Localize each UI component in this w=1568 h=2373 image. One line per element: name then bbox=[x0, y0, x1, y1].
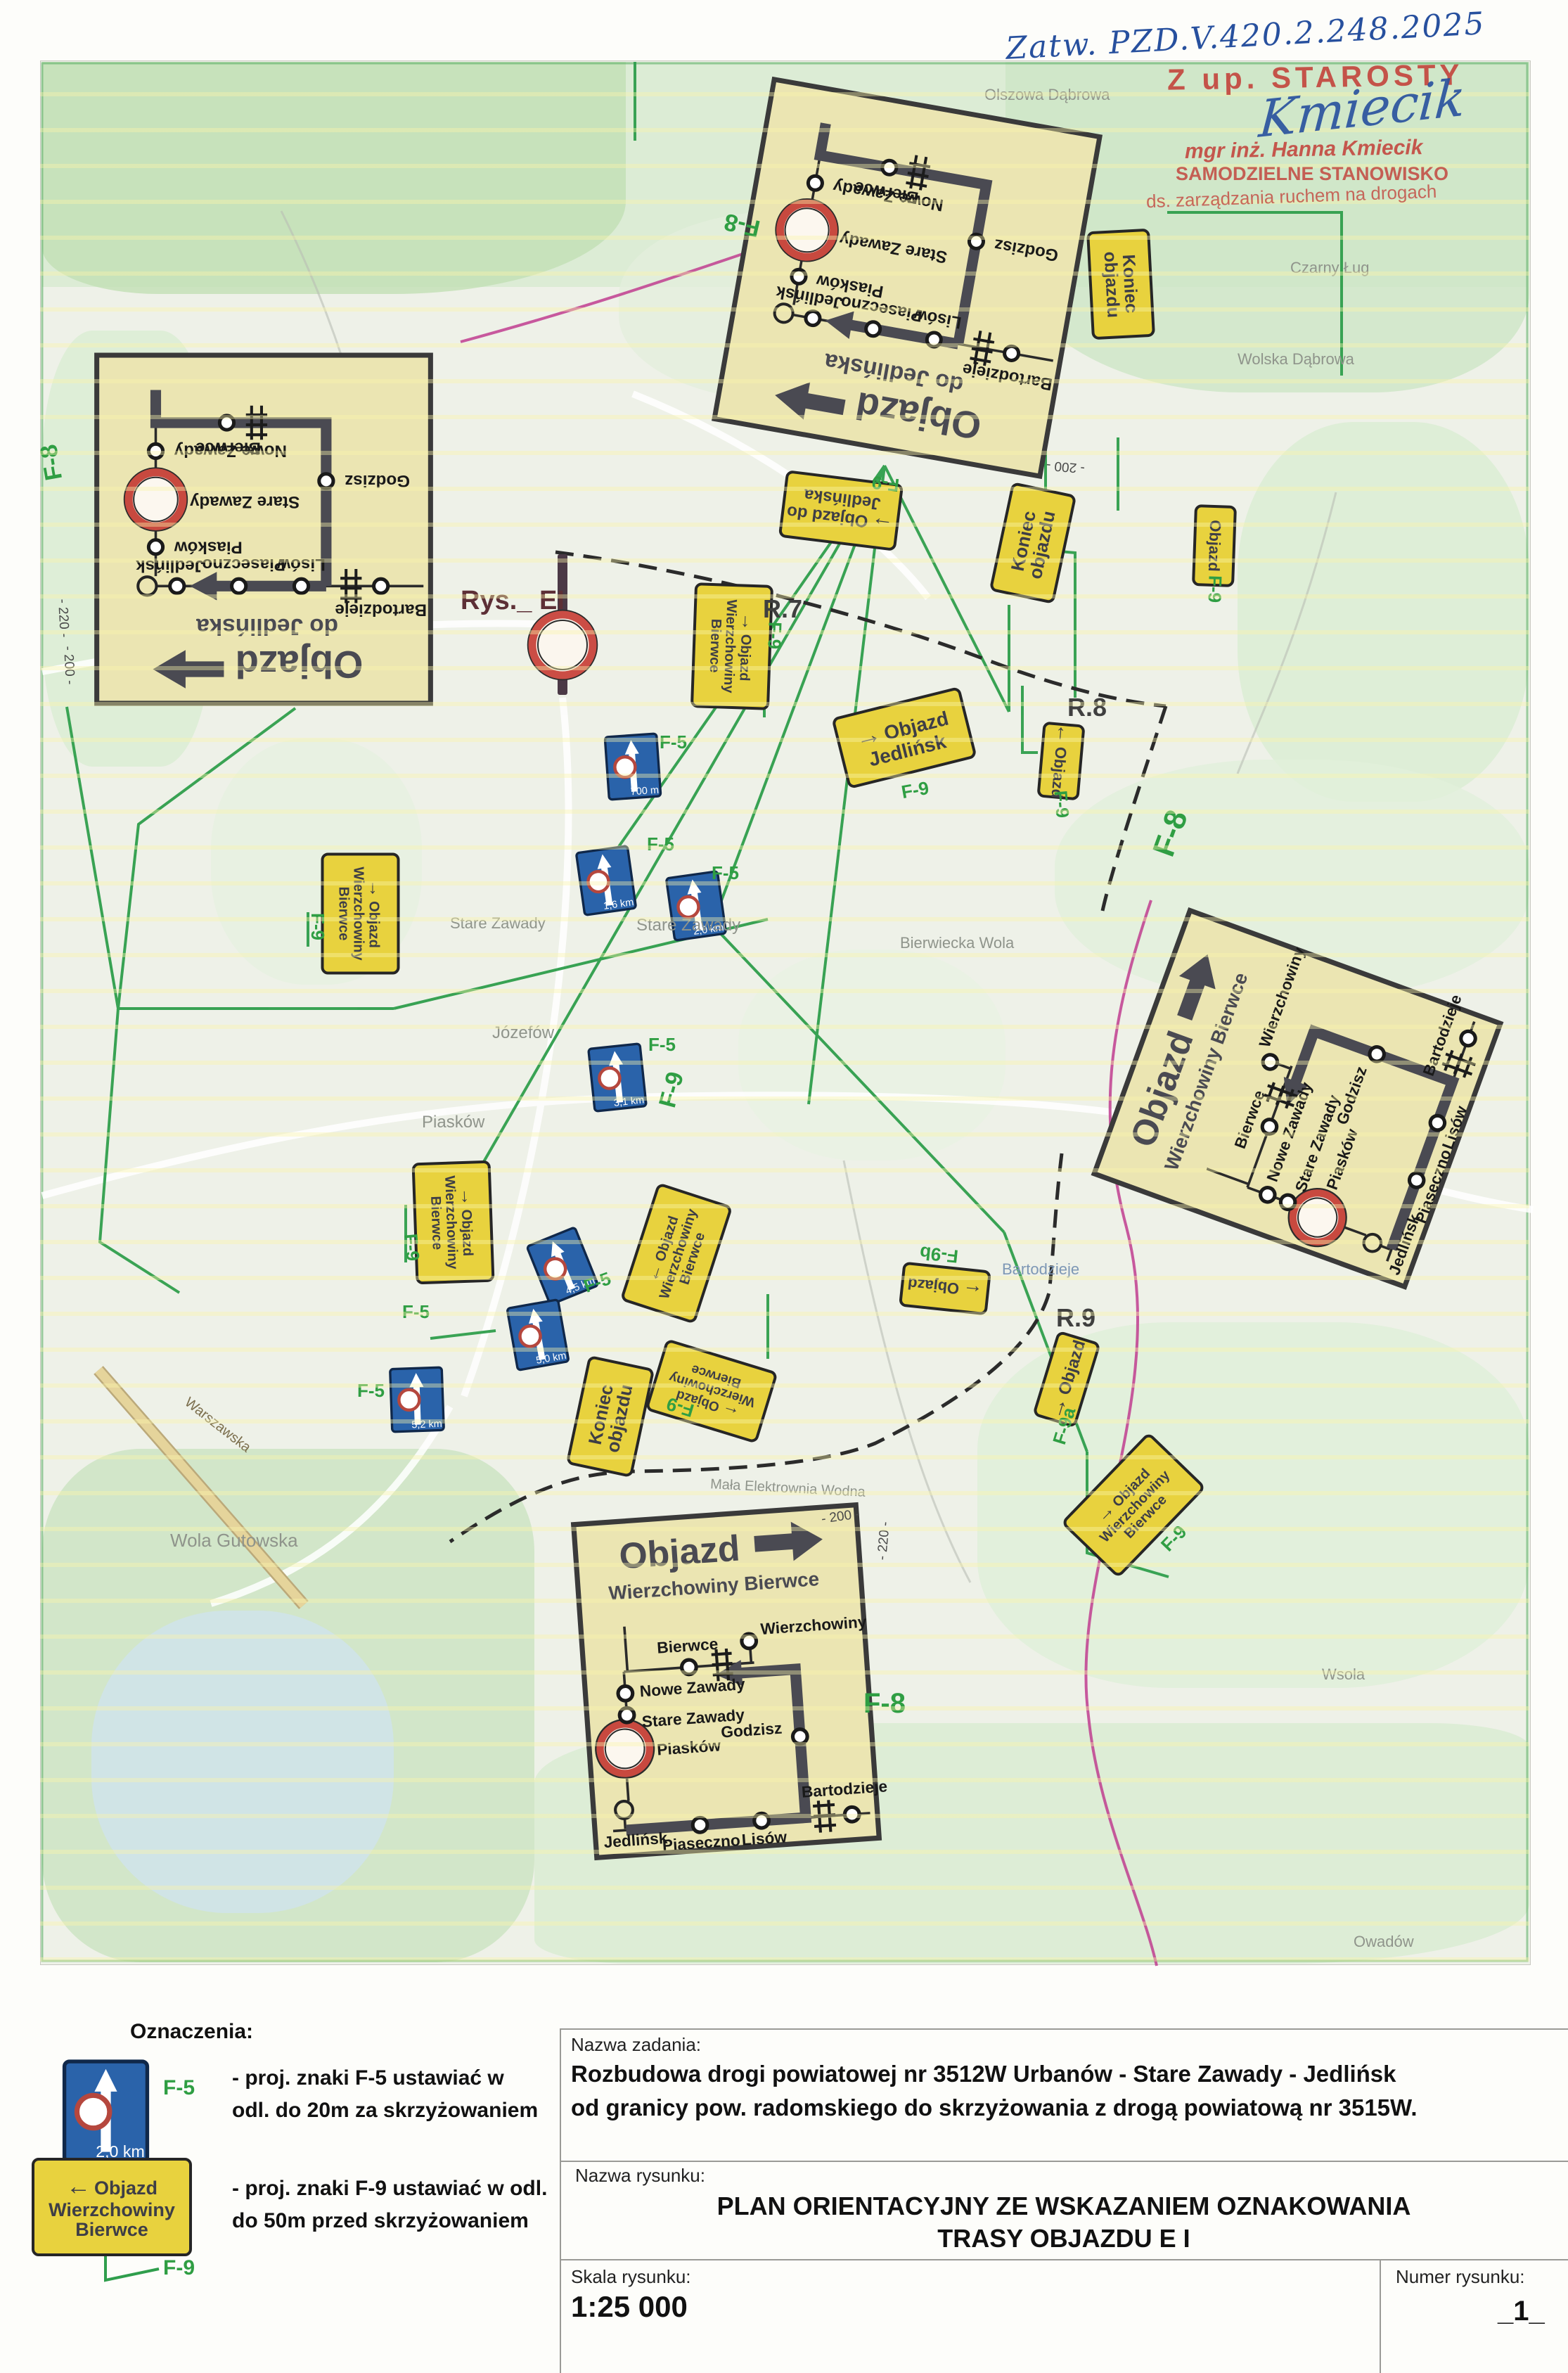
distance-sign-f5: 3,1 km bbox=[586, 1042, 648, 1113]
drawing-number-label: Numer rysunku: bbox=[1396, 2266, 1525, 2288]
stamp-name: mgr inż. Hanna Kmiecik bbox=[1185, 136, 1423, 164]
place-label: Bierwiecka Wola bbox=[900, 934, 1014, 952]
end-of-detour-sign: Koniec objazdu bbox=[1086, 229, 1155, 340]
inset-title: Objazd bbox=[618, 1528, 742, 1577]
sign-code-label: F-5 bbox=[712, 862, 739, 884]
roundabout-icon bbox=[138, 577, 156, 595]
detour-sign-f9: →Objazd Wierzchowiny Bierwce bbox=[412, 1160, 495, 1285]
roundabout-icon bbox=[615, 1800, 633, 1819]
legend-heading: Oznaczenia: bbox=[130, 2020, 253, 2044]
sign-code-label: F-9b bbox=[919, 1241, 960, 1267]
legend-f9-sign: ←Objazd Wierzchowiny Bierwce bbox=[32, 2158, 192, 2256]
contour-label: - 200 - bbox=[1046, 457, 1086, 476]
place-label: Stare Zawady bbox=[450, 914, 546, 933]
sign-arrow-icon: → bbox=[456, 1187, 478, 1206]
sign-arrow-icon: ← bbox=[1051, 722, 1075, 744]
inset-title: Objazd bbox=[236, 643, 364, 686]
inset-diagram: Objazd do Jedlińska Bartodzieje Lisów Pi… bbox=[67, 352, 461, 707]
detour-sign-f9: ←Objazd bbox=[1036, 722, 1085, 801]
scanned-detour-plan-page: Objazd do Jedlińska Bartodzieje Lisów Pi… bbox=[0, 0, 1568, 2373]
route-ref-label: R.7 bbox=[763, 594, 802, 624]
titleblock-border bbox=[1380, 2259, 1381, 2373]
sign-code-label: F-9 bbox=[307, 913, 328, 940]
road-closed-icon bbox=[587, 870, 610, 893]
inset-node-label: Stare Zawady bbox=[189, 492, 300, 511]
task-name-line2: od granicy pow. radomskiego do skrzyżowa… bbox=[571, 2094, 1418, 2121]
titleblock-border bbox=[560, 2161, 1568, 2162]
inset-node-label: Jedlińsk bbox=[136, 556, 205, 575]
closed-road-symbol bbox=[528, 554, 597, 695]
contour-label: - 200 - bbox=[60, 646, 77, 685]
inset-node-label: Piaseczno bbox=[202, 555, 285, 574]
sign-code-label: F-9 bbox=[870, 471, 900, 497]
legend-f9-code: F-9 bbox=[163, 2256, 195, 2280]
detour-sign-f9: →Objazd Wierzchowiny Bierwce bbox=[321, 853, 400, 975]
sign-arrow-icon: → bbox=[870, 511, 894, 539]
drawing-number-value: _1_ bbox=[1498, 2296, 1545, 2327]
drawing-title-line2: TRASY OBJAZDU E I bbox=[560, 2224, 1568, 2253]
sign-code-label: F-5 bbox=[660, 731, 687, 753]
road-closed-icon bbox=[518, 1324, 542, 1348]
inset-node-label: Godzisz bbox=[345, 471, 410, 490]
inset-subtitle: do Jedlińska bbox=[196, 613, 338, 639]
inset-node-label: Nowe Zawady bbox=[174, 441, 287, 460]
sign-code-label: F-9 bbox=[399, 1233, 423, 1262]
place-label: Czarny Ług bbox=[1290, 259, 1370, 277]
distance-sign-f5: 5,0 km bbox=[505, 1298, 570, 1372]
sign-arrow-icon: ← bbox=[66, 2173, 91, 2200]
drawing-name-label: Nazwa rysunku: bbox=[575, 2165, 705, 2187]
sign-code-label: F-5 bbox=[357, 1380, 385, 1402]
svg-text:5,2 km: 5,2 km bbox=[411, 1419, 442, 1431]
road-closed-icon bbox=[77, 2095, 109, 2128]
inset-objazd-do-jedlinska-2: Objazd do Jedlińska Bartodzieje Lisów Pi… bbox=[707, 75, 1107, 480]
place-label: Wsola bbox=[1322, 1665, 1365, 1684]
titleblock-border bbox=[560, 2028, 1568, 2030]
inset-diagram: Objazd Wierzchowiny Bierwce Bierwce Wier… bbox=[560, 1500, 893, 1862]
scale-value: 1:25 000 bbox=[571, 2290, 688, 2324]
sign-code-label: F-5 bbox=[402, 1301, 430, 1323]
sign-arrow-icon: → bbox=[365, 879, 386, 897]
distance-sign-f5: 5,2 km bbox=[388, 1366, 445, 1434]
legend-f9-desc-line2: do 50m przed skrzyżowaniem bbox=[232, 2209, 529, 2233]
road-closed-icon bbox=[399, 1389, 420, 1410]
route-ref-label: R.8 bbox=[1067, 693, 1107, 722]
detour-sign-f9: →Objazd Wierzchowiny Bierwce bbox=[690, 582, 773, 710]
road-closed-icon bbox=[129, 473, 183, 527]
place-label: Owadów bbox=[1354, 1933, 1414, 1951]
road-closed-icon bbox=[598, 1067, 621, 1089]
inset-objazd-do-jedlinska-1: Objazd do Jedlińska Bartodzieje Lisów Pi… bbox=[67, 352, 461, 707]
scale-label: Skala rysunku: bbox=[571, 2266, 691, 2288]
road-closed-icon bbox=[614, 756, 636, 778]
task-name-line1: Rozbudowa drogi powiatowej nr 3512W Urba… bbox=[571, 2061, 1396, 2087]
detour-sign-f9: ←Objazd bbox=[899, 1262, 991, 1316]
place-label: Wolska Dąbrowa bbox=[1238, 350, 1354, 369]
roundabout-icon bbox=[773, 302, 795, 324]
titleblock-border bbox=[560, 2259, 1568, 2260]
inset-node-label: Lisów bbox=[741, 1827, 788, 1848]
drawing-title-line1: PLAN ORIENTACYJNY ZE WSKAZANIEM OZNAKOWA… bbox=[560, 2192, 1568, 2221]
sign-arrow-icon: → bbox=[737, 612, 759, 631]
place-label: Józefów bbox=[492, 1023, 554, 1043]
svg-text:700 m: 700 m bbox=[630, 785, 659, 798]
road-closed-icon bbox=[677, 895, 700, 919]
place-label: Stare Zawady bbox=[636, 916, 740, 935]
inset-diagram: Objazd do Jedlińska Bartodzieje Lisów Pi… bbox=[707, 75, 1107, 480]
inset-objazd-wierzchowiny-bottom: Objazd Wierzchowiny Bierwce Bierwce Wier… bbox=[560, 1500, 893, 1862]
legend-f5-sign: 2,0 km bbox=[62, 2057, 150, 2166]
contour-label: - 220 - bbox=[54, 599, 72, 638]
sign-code-label: F-9 bbox=[1203, 575, 1226, 603]
distance-sign-f5: 1,6 km bbox=[574, 844, 638, 917]
place-label: Wola Gutowska bbox=[170, 1530, 298, 1552]
inset-node-label: Bartodzieje bbox=[335, 601, 427, 620]
place-label: Piasków bbox=[422, 1113, 484, 1132]
legend-f5-desc-line1: - proj. znaki F-5 ustawiać w bbox=[232, 2066, 504, 2090]
place-label: Olszowa Dąbrowa bbox=[984, 86, 1110, 104]
sign-arrow-icon: ← bbox=[961, 1279, 984, 1304]
legend-f9-desc-line1: - proj. znaki F-9 ustawiać w odl. bbox=[232, 2177, 547, 2201]
legend-f5-code: F-5 bbox=[163, 2076, 195, 2100]
sign-code-label: F-5 bbox=[648, 1034, 676, 1056]
inset-node-label: Piasków bbox=[174, 538, 243, 557]
task-name-label: Nazwa zadania: bbox=[571, 2034, 701, 2056]
sign-code-label: F-9 bbox=[1049, 790, 1073, 819]
legend-f5-desc-line2: odl. do 20m za skrzyżowaniem bbox=[232, 2099, 538, 2123]
distance-sign-f5: 700 m bbox=[603, 731, 662, 801]
sign-code-label: F-5 bbox=[647, 833, 674, 855]
route-ref-label: R.9 bbox=[1056, 1303, 1095, 1333]
route-code-label: F-8 bbox=[863, 1688, 906, 1720]
sign-code-label: F-9 bbox=[763, 621, 785, 649]
place-label: Bartodzieje bbox=[1002, 1260, 1079, 1279]
figure-label: Rys._ EI bbox=[461, 586, 565, 616]
